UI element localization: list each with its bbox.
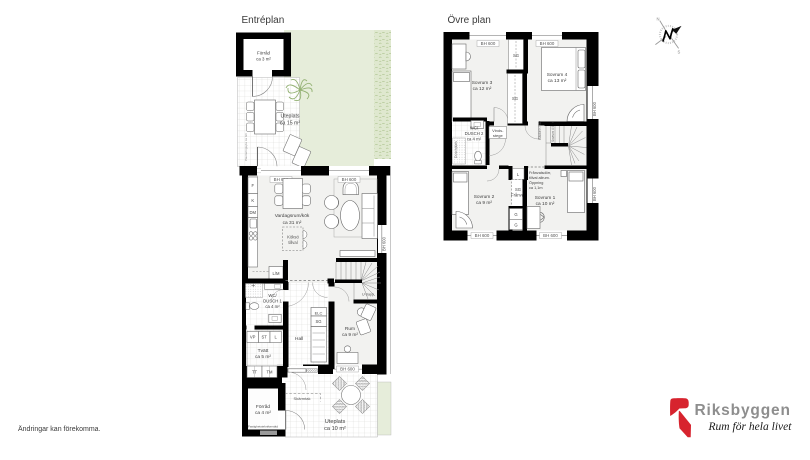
svg-text:U-trapp: U-trapp — [362, 293, 374, 297]
svg-text:Entréplan: Entréplan — [242, 15, 285, 26]
svg-text:BH 600: BH 600 — [592, 101, 597, 116]
svg-text:ca 4 m²: ca 4 m² — [467, 137, 482, 142]
svg-text:ca 31 m²: ca 31 m² — [283, 220, 302, 226]
svg-text:SG: SG — [315, 319, 321, 324]
svg-text:G: G — [514, 212, 517, 217]
svg-text:ca 3 m²: ca 3 m² — [256, 57, 271, 62]
svg-text:VP: VP — [250, 335, 256, 340]
svg-text:ELC: ELC — [315, 311, 323, 316]
svg-text:G: G — [514, 223, 517, 228]
svg-text:Sovrum 3: Sovrum 3 — [472, 80, 493, 86]
svg-text:L/M: L/M — [273, 271, 280, 276]
svg-text:Räcke h 900: Räcke h 900 — [538, 121, 542, 140]
svg-text:Frånvalsdörr,: Frånvalsdörr, — [529, 171, 551, 175]
svg-text:SG: SG — [513, 53, 519, 58]
svg-text:DUSCH 2: DUSCH 2 — [465, 131, 484, 136]
svg-text:WC/: WC/ — [470, 126, 479, 131]
svg-text:DUSCH 1: DUSCH 1 — [263, 299, 282, 304]
svg-text:Skärmtak: Skärmtak — [294, 396, 311, 401]
svg-text:Planteringsyta ca 4m: Planteringsyta ca 4m — [244, 132, 248, 161]
svg-text:ca 9 m²: ca 9 m² — [342, 332, 358, 338]
svg-text:Ändringar kan förekomma.: Ändringar kan förekomma. — [18, 425, 101, 433]
svg-text:ca 13 m²: ca 13 m² — [548, 78, 567, 84]
svg-text:Köksö: Köksö — [287, 235, 299, 240]
svg-text:ca 1,1m: ca 1,1m — [529, 186, 543, 190]
svg-text:Fastighetsteknikerstäd: Fastighetsteknikerstäd — [248, 425, 278, 429]
svg-text:tillval allrum.: tillval allrum. — [529, 176, 550, 180]
svg-text:ca 4 m²: ca 4 m² — [255, 410, 271, 416]
svg-text:Vardagsrum/kök: Vardagsrum/kök — [275, 213, 310, 219]
svg-text:Sovrum 1: Sovrum 1 — [535, 195, 556, 201]
svg-text:ST: ST — [262, 335, 268, 340]
svg-text:TM: TM — [266, 370, 273, 375]
svg-text:ca 10 m²: ca 10 m² — [324, 426, 346, 432]
svg-text:BH 600: BH 600 — [382, 236, 387, 251]
svg-text:Riksbyggen: Riksbyggen — [695, 402, 791, 419]
svg-text:DM: DM — [250, 210, 257, 215]
svg-text:Tvätt: Tvätt — [258, 348, 269, 354]
svg-text:BH 600: BH 600 — [342, 177, 357, 182]
svg-text:S: S — [678, 50, 681, 55]
svg-text:ca 4 m²: ca 4 m² — [265, 304, 280, 309]
svg-text:N: N — [657, 17, 660, 22]
svg-text:SG: SG — [515, 187, 521, 192]
svg-text:Duschplats: Duschplats — [454, 141, 458, 158]
svg-text:Förråd: Förråd — [256, 403, 270, 410]
svg-text:ca 12 m²: ca 12 m² — [473, 86, 492, 92]
svg-text:Rum: Rum — [345, 326, 355, 332]
svg-text:BH 600: BH 600 — [540, 41, 555, 46]
svg-text:ca 10 m²: ca 10 m² — [536, 201, 555, 207]
svg-text:BH 600: BH 600 — [475, 233, 490, 238]
svg-text:BH 600: BH 600 — [543, 233, 558, 238]
svg-text:K: K — [251, 198, 254, 203]
svg-text:ca 5 m²: ca 5 m² — [255, 354, 271, 360]
svg-text:BH 600: BH 600 — [340, 367, 355, 372]
svg-text:Sovrum 2: Sovrum 2 — [474, 194, 495, 200]
svg-text:Uteplats: Uteplats — [325, 419, 346, 425]
svg-text:Hall: Hall — [295, 336, 303, 342]
svg-text:ca 9 m²: ca 9 m² — [476, 200, 492, 206]
svg-text:tillval: tillval — [288, 240, 297, 245]
svg-text:F: F — [252, 183, 255, 188]
svg-text:BH 600: BH 600 — [592, 186, 597, 201]
svg-text:SG: SG — [512, 96, 518, 101]
svg-text:Uteplats: Uteplats — [280, 114, 299, 120]
svg-text:Övre plan: Övre plan — [448, 14, 491, 26]
svg-text:Sovrum 4: Sovrum 4 — [547, 72, 568, 78]
svg-text:Rum för hela livet: Rum för hela livet — [708, 421, 793, 433]
svg-text:Förråd: Förråd — [257, 51, 270, 56]
svg-text:TT: TT — [252, 370, 258, 375]
svg-text:ca 15 m²: ca 15 m² — [280, 121, 300, 127]
svg-text:Öppning: Öppning — [529, 181, 543, 185]
svg-text:stege: stege — [493, 133, 504, 138]
svg-text:BH 600: BH 600 — [481, 41, 496, 46]
